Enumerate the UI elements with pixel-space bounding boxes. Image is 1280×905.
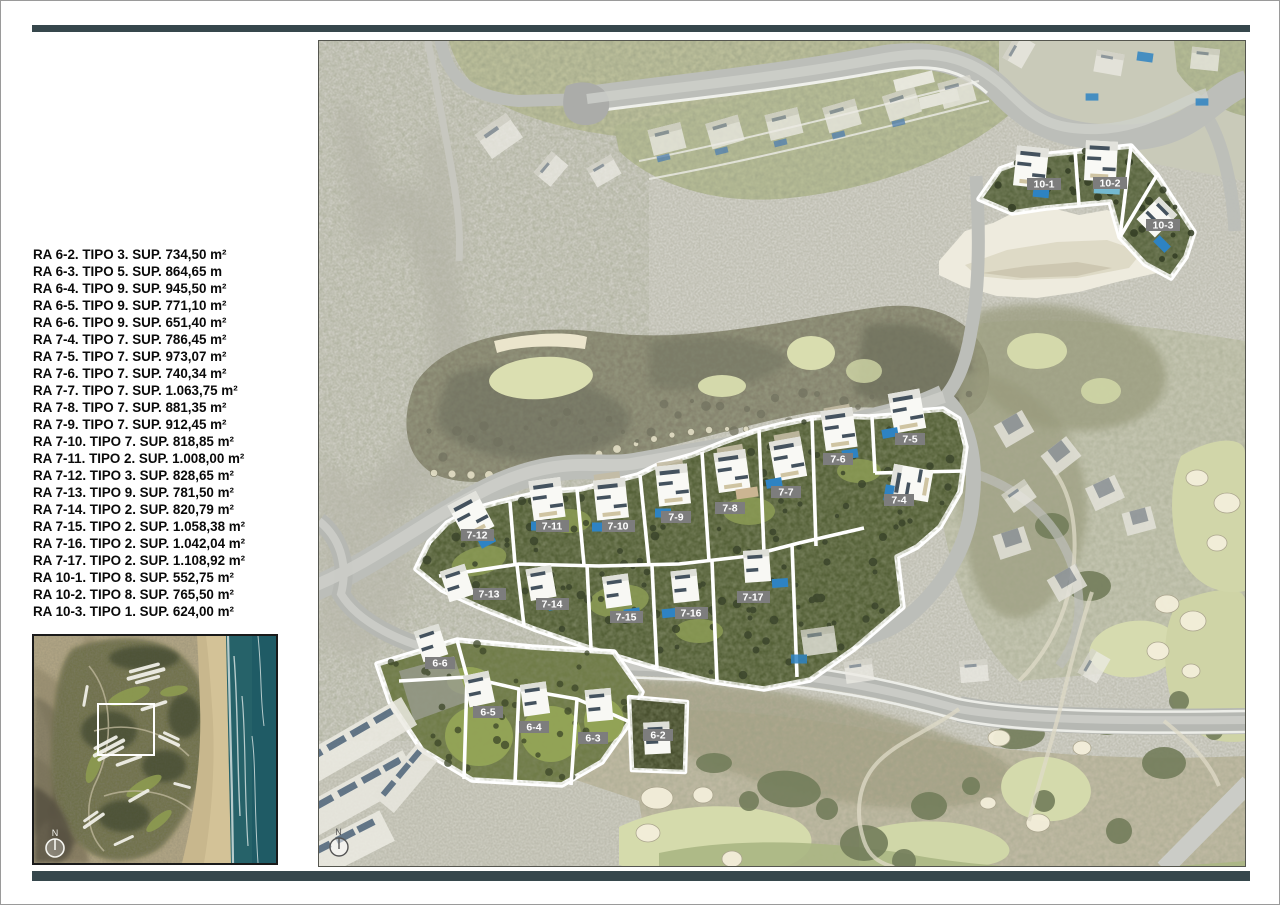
svg-text:7-16: 7-16 — [680, 608, 701, 620]
svg-text:6-4: 6-4 — [526, 722, 541, 734]
svg-text:7-5: 7-5 — [902, 434, 917, 446]
svg-text:7-8: 7-8 — [722, 503, 737, 515]
svg-text:7-6: 7-6 — [830, 454, 845, 466]
svg-text:6-5: 6-5 — [480, 707, 495, 719]
svg-text:10-3: 10-3 — [1152, 220, 1173, 232]
svg-text:7-12: 7-12 — [466, 530, 487, 542]
svg-text:6-3: 6-3 — [585, 733, 600, 745]
svg-text:7-13: 7-13 — [478, 589, 499, 601]
svg-text:6-6: 6-6 — [432, 658, 447, 670]
svg-text:N: N — [52, 828, 59, 838]
svg-text:7-9: 7-9 — [668, 512, 683, 524]
svg-text:6-2: 6-2 — [650, 730, 665, 742]
svg-text:7-4: 7-4 — [891, 495, 906, 507]
svg-text:N: N — [335, 827, 342, 837]
svg-text:10-1: 10-1 — [1033, 179, 1054, 191]
svg-text:7-14: 7-14 — [541, 599, 562, 611]
svg-text:7-11: 7-11 — [542, 521, 563, 533]
svg-text:7-17: 7-17 — [742, 592, 763, 604]
svg-text:10-2: 10-2 — [1099, 178, 1120, 190]
svg-text:7-7: 7-7 — [778, 487, 793, 499]
svg-text:7-10: 7-10 — [607, 521, 628, 533]
svg-text:7-15: 7-15 — [615, 612, 636, 624]
